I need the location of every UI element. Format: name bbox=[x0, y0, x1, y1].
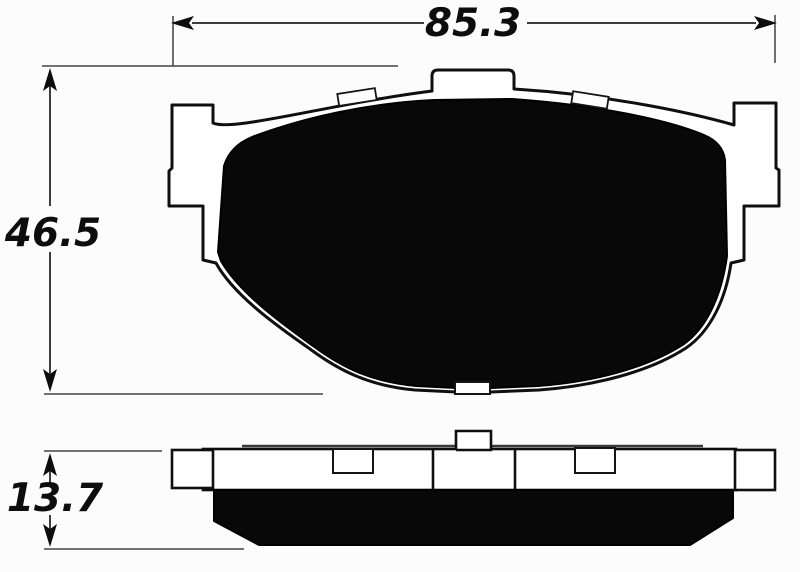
brake-pad-technical-drawing: 85.3 46.5 13.7 bbox=[0, 0, 800, 572]
center-top-tab bbox=[456, 431, 491, 450]
side-end-tab-left bbox=[172, 450, 213, 488]
bottom-center-notch bbox=[455, 382, 490, 394]
side-view bbox=[172, 431, 775, 545]
side-notch-left bbox=[333, 449, 373, 473]
width-arrowhead-left bbox=[171, 16, 194, 30]
side-end-tab-right bbox=[735, 450, 775, 490]
dimension-width: 85.3 bbox=[171, 1, 777, 67]
side-backing-plate bbox=[203, 449, 736, 490]
front-view bbox=[169, 70, 779, 394]
dimension-height-label: 46.5 bbox=[4, 211, 101, 256]
side-friction-material bbox=[214, 490, 733, 545]
friction-material bbox=[218, 99, 727, 388]
diagram-canvas: 85.3 46.5 13.7 bbox=[0, 0, 800, 572]
dimension-thickness-label: 13.7 bbox=[7, 476, 104, 521]
side-notch-right bbox=[575, 448, 615, 473]
dimension-width-label: 85.3 bbox=[425, 1, 521, 46]
width-arrowhead-right bbox=[754, 16, 777, 30]
